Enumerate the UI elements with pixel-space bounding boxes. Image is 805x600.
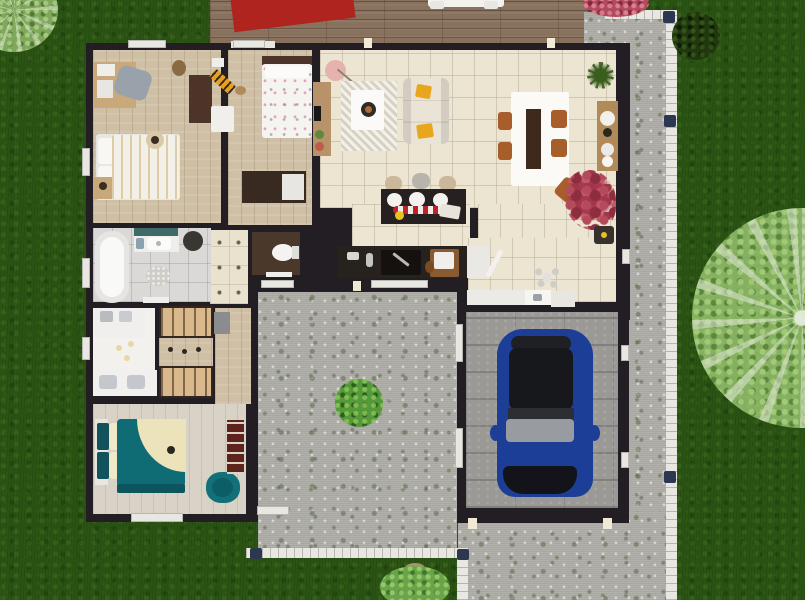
- courtyard-sill-right-2: [455, 428, 463, 468]
- utility-washer-lid-2: [119, 311, 132, 322]
- entry-chandelier: [532, 264, 562, 290]
- kitchen-jar: [425, 261, 434, 273]
- kitchen-dish: [347, 252, 359, 260]
- bath-tub-basin: [100, 237, 124, 297]
- curb-post-top: [663, 11, 675, 23]
- b2-media-tv: [314, 106, 321, 121]
- master-cushion-1: [97, 423, 109, 450]
- deck-chair-left: [430, 1, 444, 9]
- lv-tray-fruit: [365, 106, 372, 113]
- wall-light-deck-1: [364, 38, 372, 48]
- utility-light-2: [128, 341, 134, 347]
- closet-spot-2: [182, 349, 187, 354]
- master-cushion-2: [97, 452, 109, 479]
- window-top-1: [128, 40, 166, 48]
- master-armchair-seat: [212, 478, 233, 497]
- b1-pillow-1: [98, 138, 113, 164]
- utility-washer-lid-1: [100, 311, 113, 322]
- bath-mosaic: [146, 266, 170, 286]
- curb-post-south: [250, 548, 262, 559]
- master-duvet-foot: [117, 484, 185, 493]
- kitchen-microwave: [434, 252, 454, 269]
- entry-side-door-sill: [622, 249, 630, 264]
- dining-chair-l2: [498, 142, 512, 160]
- utility-light-3: [124, 355, 130, 361]
- curb-post-inner: [457, 549, 469, 560]
- curb-post-right-2: [664, 471, 676, 483]
- courtyard-sill-bottom: [257, 506, 289, 515]
- dining-runner: [526, 109, 541, 169]
- island-plate-1: [387, 193, 402, 207]
- dining-chair-r2: [551, 139, 567, 157]
- sideboard-vase-2: [602, 156, 613, 167]
- b2-rug: [211, 106, 234, 132]
- entry-sink-basin: [533, 294, 542, 301]
- bush-bottom: [380, 566, 450, 600]
- car-roof-glass: [509, 348, 573, 410]
- b1-plant: [172, 60, 186, 76]
- bath-basket: [183, 231, 203, 251]
- wc-toilet-tank: [292, 246, 299, 259]
- wall-light-deck-2: [547, 38, 555, 48]
- courtyard-sill-top-1: [261, 280, 294, 288]
- courtyard-sill-right-1: [455, 324, 463, 362]
- dining-chair-r1: [551, 110, 567, 128]
- sideboard-lamp: [600, 111, 615, 126]
- b1-nightstand-item: [99, 182, 107, 190]
- utility-sink-2: [127, 375, 145, 389]
- bath-sink-drain: [156, 241, 161, 246]
- lv-arc-lamp-shade: [325, 60, 346, 81]
- bath-vanity-shelf: [134, 228, 178, 236]
- b1-stool-tray: [151, 136, 159, 144]
- lv-pillow-1: [415, 84, 432, 99]
- window-left-2: [82, 258, 90, 288]
- window-left-1: [82, 148, 90, 176]
- b1-desk-papers: [97, 64, 115, 76]
- island-duck: [395, 211, 404, 220]
- courtyard-sill-top-2: [371, 280, 428, 288]
- utility-light-1: [116, 345, 122, 351]
- closet-shelf-bottom: [159, 366, 213, 398]
- car-windshield: [506, 419, 574, 442]
- island-plate-2: [409, 192, 425, 207]
- master-window-sill: [131, 513, 183, 522]
- curb-right: [666, 10, 677, 600]
- dining-grass-plant: [587, 62, 614, 89]
- dining-chair-l1: [498, 112, 512, 130]
- garage-side-sill-1: [621, 345, 629, 361]
- b1-laptop: [97, 80, 113, 98]
- b2-media-item: [315, 142, 324, 151]
- b1-dresser: [189, 75, 212, 123]
- lv-stool-2: [412, 173, 430, 189]
- garage-door-light-1: [468, 518, 477, 529]
- hall-bath-floor: [210, 230, 248, 304]
- car-front-bumper: [503, 466, 577, 494]
- wc-toilet-bowl: [272, 244, 294, 261]
- bush-top-right: [672, 12, 720, 60]
- b2-mini-desk: [212, 58, 224, 67]
- curb-post-right-1: [664, 115, 676, 127]
- b2-pillows: [265, 66, 309, 78]
- floor-plan-scene: [0, 0, 805, 600]
- south-gravel: [458, 512, 672, 600]
- bath-door: [143, 297, 169, 303]
- master-bookshelf: [227, 420, 244, 474]
- kitchen-sink: [381, 250, 421, 275]
- courtyard-wall-light: [353, 281, 361, 291]
- b2-stool: [235, 86, 246, 95]
- master-throw-button: [167, 446, 175, 454]
- closet-spot-1: [168, 347, 173, 352]
- sideboard-vase-1: [601, 143, 614, 156]
- sideboard-bottle: [603, 128, 612, 137]
- courtyard-bush: [335, 379, 383, 427]
- car-mirror-right: [589, 425, 600, 441]
- kitchen-bottle: [366, 253, 373, 267]
- x-stool-knob: [601, 232, 607, 238]
- lv-pillow-2: [416, 123, 434, 139]
- garage-side-sill-2: [621, 452, 629, 468]
- b2-wardrobe-door: [282, 174, 304, 200]
- b1-duvet: [112, 135, 179, 199]
- utility-sink-1: [99, 375, 117, 389]
- wc-door: [266, 272, 292, 277]
- b2-media-plant: [315, 130, 324, 139]
- hall-console: [214, 312, 230, 334]
- entry-doormat: [551, 291, 575, 307]
- closet-spot-3: [196, 347, 201, 352]
- garage-door-light-2: [603, 518, 612, 529]
- curb-south: [246, 548, 462, 558]
- window-left-3: [82, 337, 90, 360]
- window-top-2: [233, 40, 265, 48]
- bath-toiletries: [136, 238, 144, 249]
- closet-shelf-top: [159, 306, 213, 338]
- deck-chair-right: [484, 1, 498, 9]
- car-mirror-left: [490, 425, 501, 441]
